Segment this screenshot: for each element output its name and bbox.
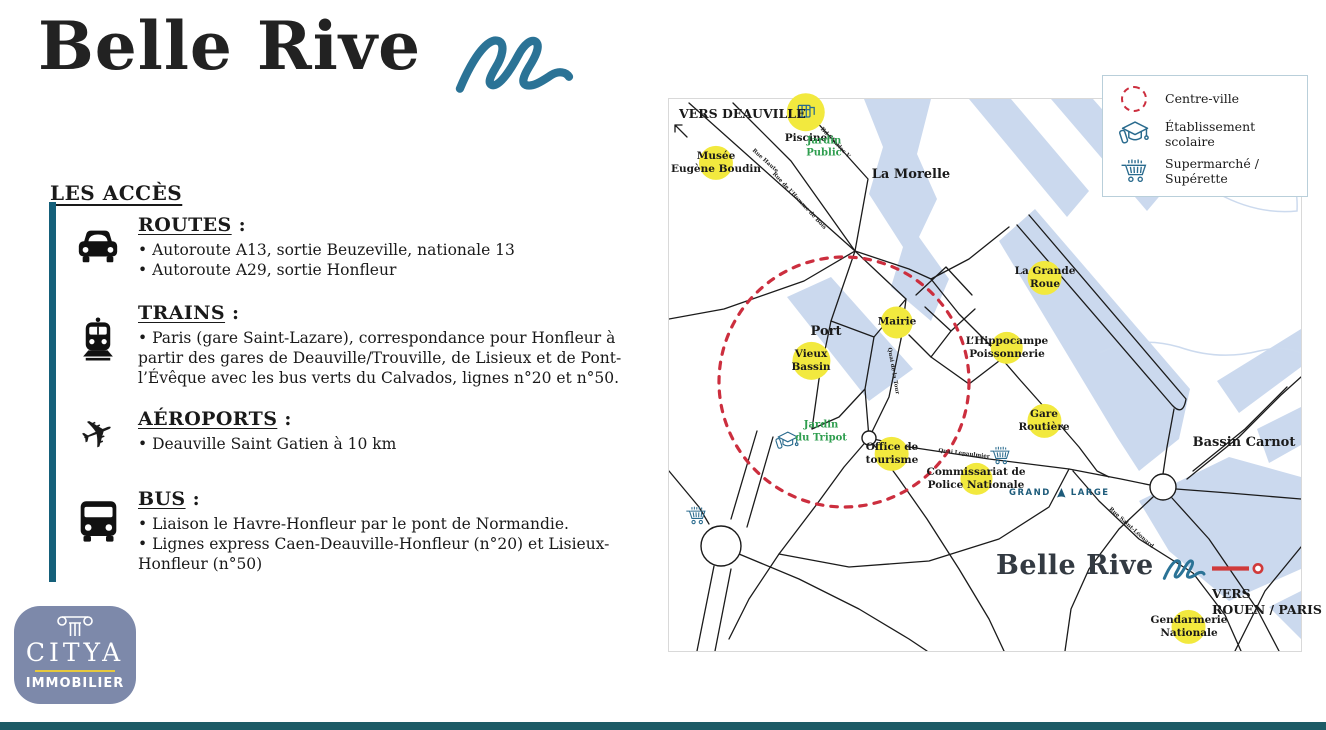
poi-label: La GrandeRoue xyxy=(1015,265,1076,291)
map-poi-gendarmerie-nationale: GendarmerieNationale xyxy=(1151,614,1228,640)
bullet-list: Paris (gare Saint-Lazare), correspondanc… xyxy=(138,328,643,388)
map-poi-mairie: Mairie xyxy=(878,315,917,328)
street-label-quai-lepaulmier: Quai Lepaulmier xyxy=(938,448,990,460)
street-label-rue-saint-l-onard: Rue Saint-Léonard xyxy=(1108,506,1155,549)
poi-label: GendarmerieNationale xyxy=(1151,614,1228,640)
direction-label-rouen-paris: VERSROUEN / PARIS xyxy=(1212,586,1322,617)
train-icon xyxy=(70,316,126,362)
map-poi-port: Port xyxy=(811,324,842,340)
supermarket-icon xyxy=(1117,158,1151,185)
legend-item-school: Établissement scolaire xyxy=(1117,119,1303,149)
citya-logo: CITYA IMMOBILIER xyxy=(14,606,136,704)
citya-subtitle: IMMOBILIER xyxy=(26,676,125,691)
sail-icon xyxy=(1055,487,1067,499)
brand-title: Belle Rive xyxy=(38,4,421,90)
poi-label: L’HippocampePoissonnerie xyxy=(966,335,1048,361)
poi-label: Port xyxy=(811,324,842,340)
poi-label: VieuxBassin xyxy=(791,348,830,374)
supermarket-icon xyxy=(685,506,708,527)
map-legend: Centre-ville Établissement scolaire Supe… xyxy=(1102,75,1308,197)
bullet: Paris (gare Saint-Lazare), correspondanc… xyxy=(138,328,643,388)
accent-bar xyxy=(49,202,56,582)
section-aeroports: AÉROPORTS : Deauville Saint Gatien à 10 … xyxy=(70,408,643,454)
poi-label: JardinPublic xyxy=(806,135,841,160)
map-poi-la-grande-roue: La GrandeRoue xyxy=(1015,265,1076,291)
section-routes: ROUTES : Autoroute A13, sortie Beuzevill… xyxy=(70,214,643,280)
poi-label: MuséeEugène Boudin xyxy=(671,150,761,176)
section-title: ROUTES : xyxy=(138,214,643,236)
section-bus: BUS : Liaison le Havre-Honfleur par le p… xyxy=(70,488,643,574)
bullet: Autoroute A13, sortie Beuzeville, nation… xyxy=(138,240,643,260)
map-brand: Belle Rive xyxy=(996,549,1267,581)
legend-item-supermarket: Supermarché / Supérette xyxy=(1117,156,1303,186)
column-capital-icon xyxy=(52,613,98,639)
section-title: AÉROPORTS : xyxy=(138,408,643,430)
wave-icon xyxy=(1162,557,1206,581)
map-poi-mus-e-eug-ne-boudin: MuséeEugène Boudin xyxy=(671,150,761,176)
map-poi-la-morelle: La Morelle xyxy=(872,167,950,183)
location-pointer-icon xyxy=(1211,562,1267,575)
map-brand-title: Belle Rive xyxy=(996,550,1154,581)
poi-label: Office detourisme xyxy=(866,441,919,467)
school-icon xyxy=(1117,120,1151,147)
section-body: TRAINS : Paris (gare Saint-Lazare), corr… xyxy=(138,302,643,388)
grand-large-word1: GRAND xyxy=(1009,488,1051,498)
access-heading: LES ACCÈS xyxy=(50,181,182,205)
centre-ville-icon xyxy=(1117,86,1151,112)
supermarket-icon xyxy=(989,446,1012,467)
street-label-quai-de-la-tour: Quai de la Tour xyxy=(886,347,900,395)
section-title: TRAINS : xyxy=(138,302,643,324)
section-body: AÉROPORTS : Deauville Saint Gatien à 10 … xyxy=(138,408,643,454)
map-poi-office-de-tourisme: Office detourisme xyxy=(866,441,919,467)
bullet-list: Autoroute A13, sortie Beuzeville, nation… xyxy=(138,240,643,280)
grand-large-word2: LARGE xyxy=(1071,488,1110,498)
poi-label: GareRoutière xyxy=(1018,408,1069,434)
bus-icon xyxy=(70,498,126,542)
map-poi-bassin-carnot: Bassin Carnot xyxy=(1193,435,1296,451)
street-label-rue-de-l-homme-de-bois: Rue de l’Homme de Bois xyxy=(771,171,827,231)
legend-label: Supermarché / Supérette xyxy=(1165,156,1303,186)
poi-label: Jardindu Tripot xyxy=(795,420,847,445)
plane-icon xyxy=(70,414,126,454)
legend-label: Centre-ville xyxy=(1165,91,1239,106)
map-poi-vieux-bassin: VieuxBassin xyxy=(791,348,830,374)
citya-name: CITYA xyxy=(26,639,124,667)
map-poi-jardin-public: JardinPublic xyxy=(806,135,841,160)
poi-label: Bassin Carnot xyxy=(1193,435,1296,451)
section-body: ROUTES : Autoroute A13, sortie Beuzevill… xyxy=(138,214,643,280)
bullet-list: Deauville Saint Gatien à 10 km xyxy=(138,434,643,454)
footer-bar xyxy=(0,722,1326,730)
poi-label: Mairie xyxy=(878,315,917,328)
grand-large-logo: GRAND LARGE xyxy=(1009,487,1110,499)
section-trains: TRAINS : Paris (gare Saint-Lazare), corr… xyxy=(70,302,643,388)
section-body: BUS : Liaison le Havre-Honfleur par le p… xyxy=(138,488,643,574)
gold-divider xyxy=(35,670,115,672)
car-icon xyxy=(70,226,126,266)
legend-item-centre-ville: Centre-ville xyxy=(1117,86,1303,112)
bullet: Autoroute A29, sortie Honfleur xyxy=(138,260,643,280)
bullet: Lignes express Caen-Deauville-Honfleur (… xyxy=(138,534,643,574)
bullet: Liaison le Havre-Honfleur par le pont de… xyxy=(138,514,643,534)
legend-label: Établissement scolaire xyxy=(1165,119,1303,149)
bullet-list: Liaison le Havre-Honfleur par le pont de… xyxy=(138,514,643,574)
map-poi-jardin-du-tripot: Jardindu Tripot xyxy=(795,420,847,445)
section-title: BUS : xyxy=(138,488,643,510)
bullet: Deauville Saint Gatien à 10 km xyxy=(138,434,643,454)
map-poi-l-hippocampe-poissonnerie: L’HippocampePoissonnerie xyxy=(966,335,1048,361)
map-poi-gare-routi-re: GareRoutière xyxy=(1018,408,1069,434)
poi-label: La Morelle xyxy=(872,167,950,183)
header-brand: Belle Rive xyxy=(38,4,583,96)
direction-label-deauville: VERS DEAUVILLE xyxy=(679,106,806,122)
wave-icon xyxy=(445,30,583,96)
